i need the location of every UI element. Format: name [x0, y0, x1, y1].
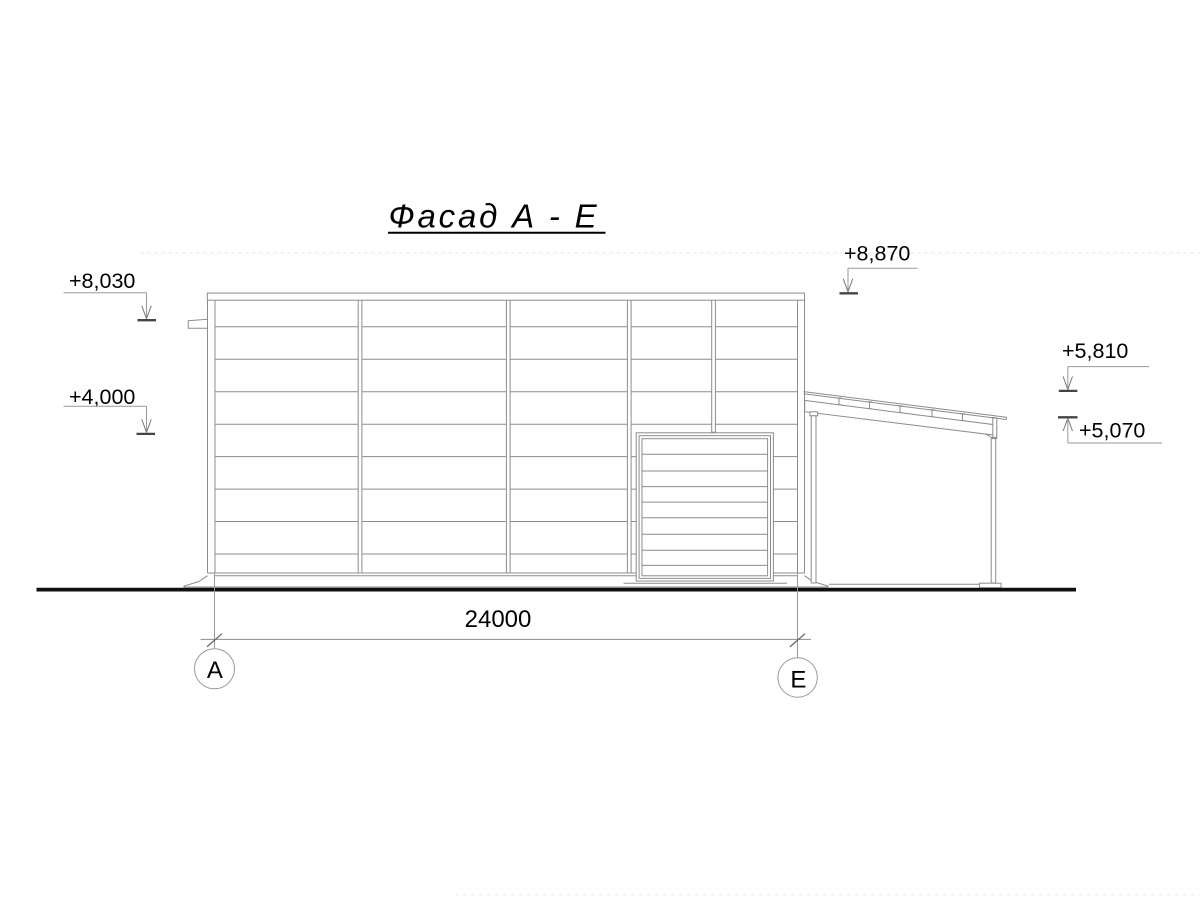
svg-text:+8,870: +8,870: [844, 242, 910, 266]
svg-text:Е: Е: [790, 667, 806, 694]
svg-text:24000: 24000: [465, 606, 532, 633]
svg-text:+8,030: +8,030: [69, 269, 135, 293]
svg-text:Фасад А - Е: Фасад А - Е: [389, 198, 600, 235]
svg-text:+4,000: +4,000: [69, 385, 135, 409]
svg-text:+5,810: +5,810: [1062, 339, 1128, 363]
svg-text:+5,070: +5,070: [1079, 418, 1145, 442]
svg-text:А: А: [207, 657, 223, 684]
